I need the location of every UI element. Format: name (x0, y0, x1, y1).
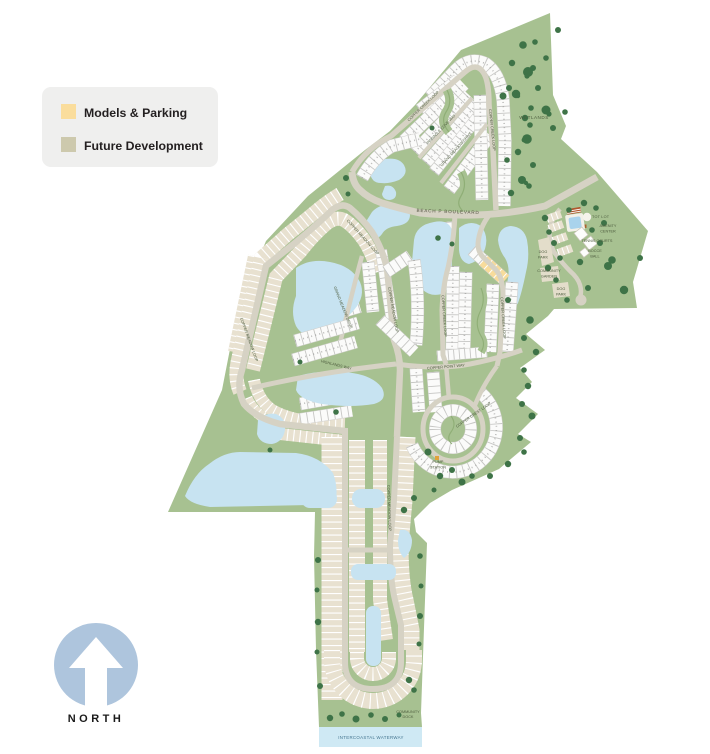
svg-text:NORTH: NORTH (68, 713, 125, 725)
svg-text:Models & Parking: Models & Parking (84, 106, 187, 120)
svg-text:Future Development: Future Development (84, 139, 203, 153)
